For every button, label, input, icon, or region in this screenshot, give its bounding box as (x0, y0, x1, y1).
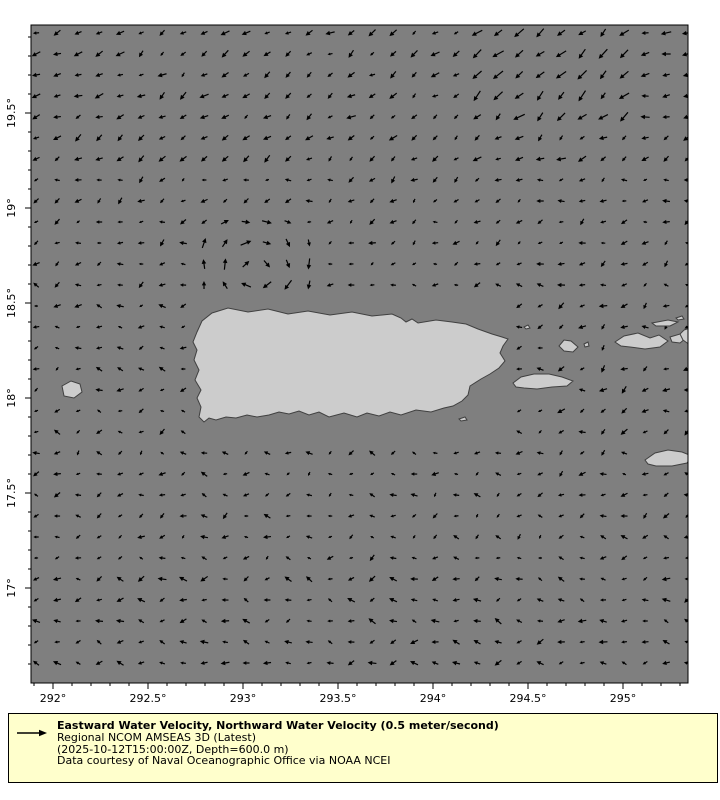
x-tick-label: 292° (40, 692, 67, 705)
x-tick-label: 292.5° (130, 692, 167, 705)
legend-source: Data courtesy of Naval Oceanographic Off… (57, 755, 499, 767)
x-tick-label: 293° (230, 692, 257, 705)
x-tick-label: 294° (420, 692, 447, 705)
velocity-map: 292°292.5°293°293.5°294°294.5°295°19.5°1… (0, 0, 720, 710)
legend-box: Eastward Water Velocity, Northward Water… (8, 713, 718, 783)
y-tick-label: 19.5° (5, 98, 18, 128)
y-tick-label: 18° (5, 388, 18, 408)
y-tick-label: 18.5° (5, 288, 18, 318)
y-tick-label: 19° (5, 198, 18, 218)
y-tick-label: 17.5° (5, 478, 18, 508)
legend-text: Eastward Water Velocity, Northward Water… (57, 714, 499, 767)
y-tick-label: 17° (5, 578, 18, 598)
x-tick-label: 293.5° (320, 692, 357, 705)
legend-dataset: Regional NCOM AMSEAS 3D (Latest) (57, 732, 499, 744)
reference-arrow-icon (15, 727, 49, 739)
x-tick-label: 295° (610, 692, 637, 705)
x-tick-label: 294.5° (510, 692, 547, 705)
